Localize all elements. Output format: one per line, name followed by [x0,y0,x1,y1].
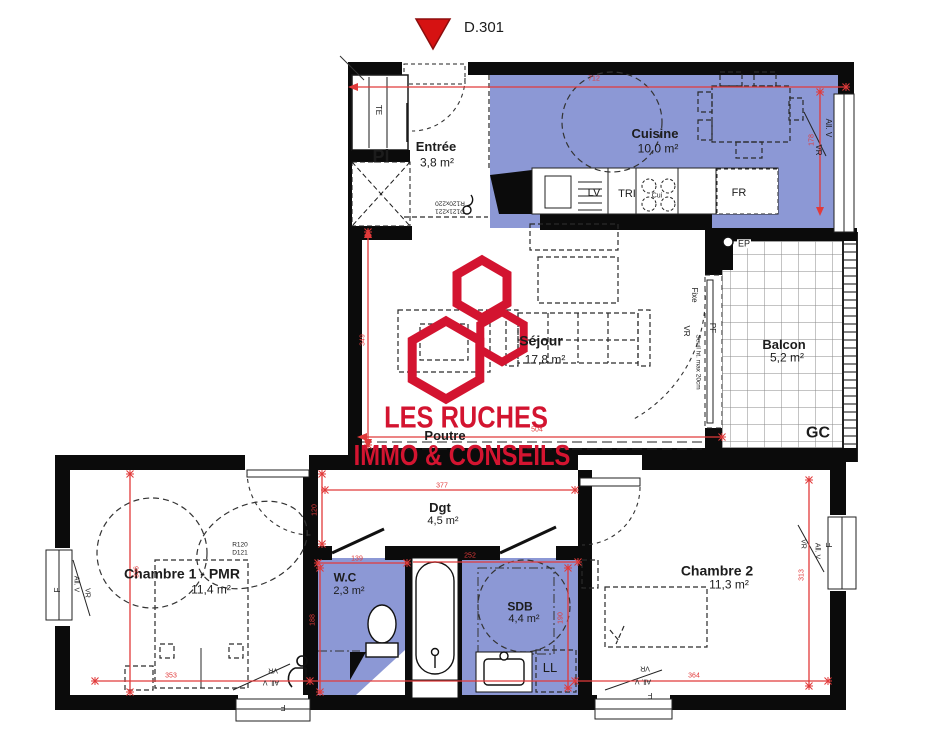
ep-label: EP [737,239,751,248]
room-name-chambre1: Chambre 1 - PMR [124,567,240,582]
watermark-logo-line2: IMMO & CONSEILS [354,441,571,471]
room-area-cuisine: 10,0 m² [638,143,679,156]
balcony-railing [843,232,857,462]
dim-ch1-bottom: 353 [165,672,177,679]
room-area-sdb: 4,4 m² [508,614,539,626]
ch2-window-vr: VR [799,539,806,549]
dim-ch1-left: 336 [133,566,140,578]
watermark-logo-line1: LES RUCHES [384,402,548,435]
cooktop-label: Cui [652,192,663,199]
room-area-dgt: 4,5 m² [427,516,458,528]
chambre2-door-leaf [580,478,640,486]
ch1-bwindow-f: F [281,703,286,711]
room-name-wc: W.C [334,572,357,585]
balcony-fixe-label: Fixe [690,287,698,302]
ch2-bwindow-f: F [648,691,653,699]
room-name-chambre2: Chambre 2 [681,564,753,579]
room-name-sdb: SDB [507,601,532,614]
ch2-window-allv: All. V [813,543,820,559]
room-area-chambre1: 11,4 m² [191,584,231,597]
ch1-bwindow-vr: VR [268,666,278,673]
ch1-window-allv: All. V [72,576,79,592]
kitchen-window-vr: VR [814,144,822,155]
door-spec-ch1-1: R120 [232,543,248,550]
dim-wc-left: 188 [309,614,316,626]
dim-dgt-top: 377 [436,482,448,489]
ch2-bwindow-allv: All. V [635,677,651,684]
floor-plan-drawing [0,0,932,753]
door-spec-entree-2: D121x221 [435,207,465,214]
fridge [717,169,778,214]
tri-label: TRI [618,189,636,201]
room-area-chambre2: 11,3 m² [709,579,749,592]
balcony-seuil-label: Seuil ht. max 20cm [694,334,701,389]
room-name-sejour: Séjour [519,334,563,349]
ch2-bwindow-vr: VR [640,664,650,671]
kitchen-sink [545,176,571,208]
unit-marker-triangle [416,19,450,49]
ch1-window-f: F [54,588,62,593]
dishwasher-label: LV [588,188,601,200]
room-name-dgt: Dgt [429,501,451,515]
room-area-entree: 3,8 m² [420,157,454,170]
floor-plan: D.301 TE Pl Entrée 3,8 m² R120x220 D121x… [0,0,932,753]
dim-top: 712 [588,75,600,82]
toilet-bowl [368,605,396,643]
ch2-window-f: F [826,543,834,548]
room-name-entree: Entrée [416,140,456,154]
dim-dgt-left: 120 [311,504,318,516]
dim-sdb-top: 252 [464,552,476,559]
gc-label: GC [806,426,830,443]
door-spec-ch1-2: D121 [232,551,248,558]
cabinet [538,257,618,303]
ch1-bwindow-allv: All. V [263,678,279,685]
nightstand [125,666,153,690]
toilet-tank [366,643,398,657]
balcony-vr-label: VR [682,325,690,336]
ch1-window-vr: VR [83,588,90,598]
unit-number-label: D.301 [464,20,504,36]
dim-sejour-left: 349 [359,334,366,346]
dim-ch2-bottom: 364 [688,672,700,679]
room-area-sejour: 17,8 m² [525,354,566,367]
bed-chambre2 [605,587,707,647]
washer-label: LL [543,661,557,675]
chambre1-door-leaf [247,470,309,477]
placard-label: Pl [372,148,389,167]
dim-ch2-right: 313 [798,569,805,581]
balcony-pf-label: PF [708,323,716,333]
dim-wc-top: 139 [351,555,363,562]
dim-sdb-right: 190 [557,612,564,624]
logo-hexagons [412,260,524,399]
dim-kitchen-right: 178 [808,134,815,146]
kitchen-window-allv: All. V [824,119,832,138]
te-label: TE [374,105,382,115]
entrance-door [404,64,465,84]
room-area-balcon: 5,2 m² [770,352,804,365]
room-area-wc: 2,3 m² [333,586,364,598]
fridge-label: FR [732,188,747,200]
room-name-cuisine: Cuisine [632,127,679,141]
chambre1-bottom-window [236,699,310,721]
door-spec-entree-1: R120x220 [435,199,465,206]
ep-drain [723,237,733,247]
